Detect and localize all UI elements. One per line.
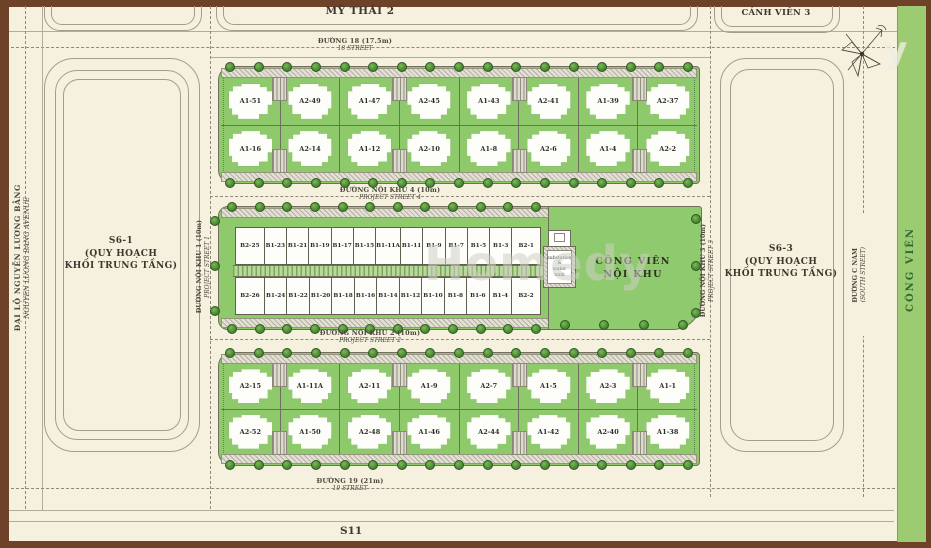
lot: A2-49 [281, 78, 341, 125]
tree-icon [683, 460, 693, 470]
lot-label: A1-4 [600, 145, 617, 153]
tree-icon [210, 261, 220, 271]
tree-icon [393, 202, 403, 212]
tree-icon [626, 348, 636, 358]
street-label-en: PROJECT STREET 4 [320, 194, 460, 201]
road-centerline-duong-19 [6, 488, 895, 489]
street-label-vi: ĐƯỜNG NỘI KHU 4 (10m) [320, 186, 460, 194]
tree-icon [227, 324, 237, 334]
lot-label: A2-15 [240, 382, 261, 390]
road-edge-south-1 [6, 510, 894, 511]
tree-icon [503, 324, 513, 334]
street-label-duong-18: ĐƯỜNG 18 (17.5m) 18 STREET [300, 37, 410, 52]
lot-label: B1-6 [470, 293, 485, 299]
lot-label: A1-11A [297, 382, 323, 390]
alley-hatch [632, 431, 647, 455]
lot: A1-8 [460, 126, 520, 173]
tree-icon [448, 202, 458, 212]
tree-icon [425, 460, 435, 470]
lot-label: A1-9 [421, 382, 438, 390]
lot-label: B1-10 [423, 293, 442, 299]
tree-icon [282, 348, 292, 358]
lot: B1-8 [445, 278, 467, 314]
lot-row: A2-52A1-50A2-48A1-46A2-44A1-42A2-40A1-38 [221, 410, 697, 455]
lot: B1-17 [332, 228, 354, 264]
tree-icon [254, 62, 264, 72]
lot: B1-9 [423, 228, 445, 264]
lot-label: A1-8 [480, 145, 497, 153]
lot: B1-5 [468, 228, 490, 264]
street-label-noi-khu-3: ĐƯỜNG NỘI KHU 3 (10m) PROJECT STREET 3 [700, 210, 715, 332]
street-label-en: (SOUTH STREET) [860, 247, 867, 302]
lot: B1-15 [354, 228, 376, 264]
lot: A2-7 [460, 364, 520, 409]
alley-hatch [632, 149, 647, 173]
lot-label: A2-48 [359, 428, 380, 436]
lot-label: B1-11 [402, 243, 421, 249]
tree-icon [569, 348, 579, 358]
tree-icon [511, 62, 521, 72]
tree-icon [511, 178, 521, 188]
tree-icon [476, 324, 486, 334]
lot-label: A1-38 [657, 428, 678, 436]
lot: A2-10 [400, 126, 460, 173]
lot-label: B1-17 [332, 243, 351, 249]
lot-label: B1-8 [448, 293, 463, 299]
lot-label: A1-50 [299, 428, 320, 436]
tree-icon [483, 178, 493, 188]
tree-icon [569, 178, 579, 188]
lot-row: A1-16A2-14A1-12A2-10A1-8A2-6A1-4A2-2 [221, 126, 697, 173]
lot: B1-21 [287, 228, 309, 264]
lot-label: A2-2 [659, 145, 676, 153]
alley-hatch [512, 363, 527, 387]
tree-icon [225, 460, 235, 470]
lot-grid: A2-15A1-11AA2-11A1-9A2-7A1-5A2-3A1-1 A2-… [221, 364, 697, 454]
alley-hatch [272, 431, 287, 455]
lot: B1-10 [422, 278, 444, 314]
tree-icon [425, 62, 435, 72]
alley-hatch [272, 363, 287, 387]
substation-box: substation & water tank [543, 246, 576, 288]
tree-icon [626, 62, 636, 72]
block-a-north: A1-51A2-49A1-47A2-45A1-43A2-41A1-39A2-37… [218, 66, 700, 184]
tree-icon [597, 62, 607, 72]
lot-label: B1-9 [426, 243, 441, 249]
lot-label: A2-41 [538, 97, 559, 105]
alley-hatch [392, 431, 407, 455]
block-s6-3-label: S6-3 (QUY HOẠCH KHỐI TRUNG TẦNG) [720, 66, 842, 458]
block-b: B2-25B1-23B1-21B1-19B1-17B1-15B1-11AB1-1… [218, 206, 550, 330]
tree-icon [597, 178, 607, 188]
lot: A2-44 [460, 410, 520, 455]
tree-row [225, 348, 693, 358]
lot-row: B2-25B1-23B1-21B1-19B1-17B1-15B1-11AB1-1… [235, 227, 541, 265]
road-edge-avenue-east [42, 6, 43, 510]
lot: B1-23 [265, 228, 287, 264]
tree-icon [540, 178, 550, 188]
lot: A1-46 [400, 410, 460, 455]
tree-row [227, 202, 541, 212]
lot: B1-4 [490, 278, 512, 314]
lot-grid: A1-51A2-49A1-47A2-45A1-43A2-41A1-39A2-37… [221, 78, 697, 172]
lot-label: A1-46 [419, 428, 440, 436]
tree-icon [282, 202, 292, 212]
tree-icon [225, 178, 235, 188]
tree-icon [540, 62, 550, 72]
tree-icon [569, 62, 579, 72]
tree-icon [340, 348, 350, 358]
tree-icon [597, 348, 607, 358]
lot-label: B1-12 [401, 293, 420, 299]
block-s6-1-line2: (QUY HOẠCH [44, 248, 198, 261]
tree-icon [483, 62, 493, 72]
tree-icon [425, 348, 435, 358]
tree-icon [210, 216, 220, 226]
tree-icon [454, 460, 464, 470]
street-label-en: 18 STREET [300, 45, 410, 52]
tree-icon [654, 62, 664, 72]
lot-label: A1-12 [359, 145, 380, 153]
lot-label: A2-10 [419, 145, 440, 153]
site-plan: MỸ THÁI 2 CẢNH VIÊN 3 ĐƯỜNG 18 (17.5m) 1… [0, 0, 931, 548]
tree-icon [683, 62, 693, 72]
lot-label: A1-42 [538, 428, 559, 436]
block-s6-1-label: S6-1 (QUY HOẠCH KHỐI TRUNG TẦNG) [44, 58, 198, 450]
lot-label: B1-18 [333, 293, 352, 299]
street-label-noi-khu-1: ĐƯỜNG NỘI KHU 1 (10m) PROJECT STREET 1 [196, 206, 211, 328]
alley-hatch [512, 149, 527, 173]
tree-icon [503, 202, 513, 212]
road-edge-south-2 [6, 521, 894, 522]
lot-label: A1-47 [359, 97, 380, 105]
lot-label: B2-1 [519, 243, 534, 249]
lot-label: A2-7 [480, 382, 497, 390]
tree-icon [599, 320, 609, 330]
block-outline-my-thai-inner [223, 6, 691, 25]
block-outline-northwest-inner [51, 6, 195, 25]
tree-icon [254, 460, 264, 470]
tree-icon [282, 62, 292, 72]
tree-icon [365, 202, 375, 212]
tree-icon [476, 202, 486, 212]
shared-alley-strip [233, 265, 543, 277]
lot-label: B1-16 [356, 293, 375, 299]
tree-icon [597, 460, 607, 470]
lot-label: A1-5 [540, 382, 557, 390]
lot-label: A2-44 [478, 428, 499, 436]
lot: A2-41 [519, 78, 579, 125]
street-label-vi: ĐẠI LỘ NGUYỄN LƯƠNG BẰNG [13, 184, 22, 331]
tree-icon [654, 460, 664, 470]
lot-label: A1-51 [240, 97, 261, 105]
lot: A2-2 [638, 126, 697, 173]
tree-icon [560, 320, 570, 330]
lot: B1-11A [376, 228, 401, 264]
block-s6-1-name: S6-1 [44, 235, 198, 248]
tree-icon [310, 202, 320, 212]
street-name-canh-vien-3: CẢNH VIÊN 3 [716, 8, 836, 18]
tree-icon [340, 460, 350, 470]
tree-icon [340, 62, 350, 72]
lot-label: B1-5 [471, 243, 486, 249]
water-tank-inner [554, 233, 565, 242]
lot-label: A2-45 [419, 97, 440, 105]
street-label-en: PROJECT STREET 2 [290, 337, 450, 344]
alley-hatch [392, 149, 407, 173]
tree-icon [454, 62, 464, 72]
lot-label: A2-37 [657, 97, 678, 105]
lot-label: B1-24 [266, 293, 285, 299]
compass-north-arrow [838, 20, 892, 78]
lot-label: B1-11A [376, 243, 400, 249]
tree-icon [282, 178, 292, 188]
tree-icon [311, 348, 321, 358]
lot: A1-1 [638, 364, 697, 409]
lot-row: A2-15A1-11AA2-11A1-9A2-7A1-5A2-3A1-1 [221, 364, 697, 410]
lot-label: B1-15 [355, 243, 374, 249]
tree-icon [626, 178, 636, 188]
tree-icon [254, 178, 264, 188]
tree-icon [255, 202, 265, 212]
tree-icon [225, 348, 235, 358]
tree-icon [683, 348, 693, 358]
street-label-vi: ĐƯỜNG 18 (17.5m) [300, 37, 410, 45]
lot: B1-12 [400, 278, 422, 314]
tree-icon [368, 62, 378, 72]
tree-icon [254, 348, 264, 358]
lot: B1-14 [377, 278, 399, 314]
block-s6-3-name: S6-3 [720, 243, 842, 256]
tree-icon [397, 348, 407, 358]
alley-hatch [512, 431, 527, 455]
lot-label: B1-22 [288, 293, 307, 299]
block-s6-3-line3: KHỐI TRUNG TẦNG) [720, 268, 842, 281]
lot: A2-3 [579, 364, 639, 409]
block-outline-my-thai [216, 6, 698, 31]
tree-icon [483, 460, 493, 470]
lot: A1-9 [400, 364, 460, 409]
lot-label: B1-23 [266, 243, 285, 249]
tree-icon [639, 320, 649, 330]
frame-left-border [0, 0, 9, 548]
alley-hatch [632, 363, 647, 387]
lot-label: A2-52 [240, 428, 261, 436]
lot: A1-11A [281, 364, 341, 409]
tree-icon [210, 306, 220, 316]
lot: B2-25 [236, 228, 265, 264]
tree-icon [227, 202, 237, 212]
street-label-avenue: ĐẠI LỘ NGUYỄN LƯƠNG BẰNG NGUYEN LUONG BA… [13, 188, 31, 328]
alley-hatch [392, 363, 407, 387]
street-label-en: 19 STREET [290, 485, 410, 492]
lot: B1-22 [287, 278, 309, 314]
substation-line3: water tank [548, 267, 571, 278]
tree-row [225, 62, 693, 72]
tree-icon [569, 460, 579, 470]
street-label-c-nam: ĐƯỜNG C NAM (SOUTH STREET) [852, 214, 867, 336]
lot-label: B1-4 [493, 293, 508, 299]
road-centerline-duong-18 [6, 47, 895, 48]
tree-icon [311, 62, 321, 72]
lot: A2-40 [579, 410, 639, 455]
tree-icon [531, 202, 541, 212]
street-label-en: PROJECT STREET 3 [708, 240, 715, 302]
lot: A1-50 [281, 410, 341, 455]
street-label-vi: ĐƯỜNG NỘI KHU 1 (10m) [196, 220, 203, 313]
tree-icon [654, 348, 664, 358]
lot: A2-14 [281, 126, 341, 173]
lot-label: B2-26 [240, 293, 259, 299]
street-label-en: NGUYEN LUONG BANG AVENUE [23, 197, 31, 319]
lot: A2-45 [400, 78, 460, 125]
road-centerline-street-4 [210, 196, 710, 197]
lot: A2-6 [519, 126, 579, 173]
lot-row: B2-26B1-24B1-22B1-20B1-18B1-16B1-14B1-12… [235, 277, 541, 315]
road-edge-south-of-18 [210, 57, 710, 58]
lot-label: B2-2 [518, 293, 533, 299]
lot-row: A1-51A2-49A1-47A2-45A1-43A2-41A1-39A2-37 [221, 78, 697, 126]
lot-label: A2-11 [359, 382, 380, 390]
lot: B2-26 [236, 278, 265, 314]
tree-icon [683, 178, 693, 188]
lot: B1-6 [467, 278, 489, 314]
lot: A2-48 [340, 410, 400, 455]
lot-label: A1-39 [597, 97, 618, 105]
alley-hatch [272, 77, 287, 101]
lot: B1-7 [446, 228, 468, 264]
lot: B1-11 [401, 228, 423, 264]
tree-icon [678, 320, 688, 330]
tree-icon [483, 348, 493, 358]
tree-icon [454, 348, 464, 358]
lot: A1-47 [340, 78, 400, 125]
road-centerline-street-2 [210, 339, 710, 340]
tree-column-west [210, 216, 220, 316]
lot: A1-12 [340, 126, 400, 173]
lot-label: B1-21 [288, 243, 307, 249]
alley-hatch [392, 77, 407, 101]
lot: A1-39 [579, 78, 639, 125]
street-label-vi: ĐƯỜNG C NAM [852, 248, 859, 303]
lot: B2-2 [512, 278, 540, 314]
lot: A1-4 [579, 126, 639, 173]
tree-icon [311, 460, 321, 470]
tree-icon [540, 348, 550, 358]
block-outline-northwest [44, 6, 202, 31]
tree-icon [282, 460, 292, 470]
lot: B1-18 [332, 278, 354, 314]
block-a-south: A2-15A1-11AA2-11A1-9A2-7A1-5A2-3A1-1 A2-… [218, 352, 700, 466]
tree-icon [420, 202, 430, 212]
street-label-vi: ĐƯỜNG NỘI KHU 2 (10m) [290, 329, 450, 337]
tree-icon [540, 460, 550, 470]
lot-label: A2-3 [600, 382, 617, 390]
lot-label: A2-6 [540, 145, 557, 153]
lot: A1-38 [638, 410, 697, 455]
lot: B1-19 [309, 228, 331, 264]
tree-icon [255, 324, 265, 334]
lot-label: B1-14 [378, 293, 397, 299]
alley-hatch [512, 77, 527, 101]
tree-icon [338, 202, 348, 212]
tree-icon [397, 62, 407, 72]
tree-icon [531, 324, 541, 334]
street-label-vi: ĐƯỜNG NỘI KHU 3 (10m) [700, 224, 707, 317]
tree-icon [511, 460, 521, 470]
lot-label: A2-40 [597, 428, 618, 436]
lot: A1-42 [519, 410, 579, 455]
lot: B1-16 [355, 278, 377, 314]
lot-label: B2-25 [240, 243, 259, 249]
lot-label: B1-19 [310, 243, 329, 249]
tree-icon [225, 62, 235, 72]
lot: B1-20 [310, 278, 332, 314]
lot: A1-5 [519, 364, 579, 409]
block-s11-label: S11 [340, 525, 362, 537]
lot-label: A1-16 [240, 145, 261, 153]
street-label-vi: ĐƯỜNG 19 (21m) [290, 477, 410, 485]
alley-hatch [272, 149, 287, 173]
lot-label: A2-14 [299, 145, 320, 153]
street-label-noi-khu-4: ĐƯỜNG NỘI KHU 4 (10m) PROJECT STREET 4 [320, 186, 460, 201]
street-name-my-thai-2: MỸ THÁI 2 [300, 5, 420, 17]
street-label-noi-khu-2: ĐƯỜNG NỘI KHU 2 (10m) PROJECT STREET 2 [290, 329, 450, 344]
block-s6-1-line3: KHỐI TRUNG TẦNG) [44, 260, 198, 273]
tree-row-park-south [560, 320, 688, 330]
lot-label: B1-7 [448, 243, 463, 249]
tree-icon [511, 348, 521, 358]
lot-label: B1-3 [493, 243, 508, 249]
lot: B1-3 [490, 228, 512, 264]
park-label: CÔNG VIÊN NỘI KHU [579, 255, 670, 281]
alley-hatch [632, 77, 647, 101]
lot-label: A1-1 [659, 382, 676, 390]
lot: A2-11 [340, 364, 400, 409]
park-strip-label: CÔNG VIÊN [905, 212, 916, 312]
street-label-duong-19: ĐƯỜNG 19 (21m) 19 STREET [290, 477, 410, 492]
lot: B1-24 [265, 278, 287, 314]
park-label-line2: NỘI KHU [595, 268, 670, 281]
block-s6-3-line2: (QUY HOẠCH [720, 256, 842, 269]
lot-label: B1-20 [311, 293, 330, 299]
substation-label: substation & water tank [547, 250, 572, 284]
tree-icon [368, 460, 378, 470]
lot: A1-43 [460, 78, 520, 125]
water-tank [548, 230, 571, 247]
park-label-line1: CÔNG VIÊN [595, 255, 670, 268]
street-label-en: PROJECT STREET 1 [204, 236, 211, 298]
lot: A2-37 [638, 78, 697, 125]
tree-icon [397, 460, 407, 470]
tree-icon [368, 348, 378, 358]
lot-label: A1-43 [478, 97, 499, 105]
lot: B2-1 [512, 228, 540, 264]
lot-label: A2-49 [299, 97, 320, 105]
tree-icon [654, 178, 664, 188]
tree-icon [626, 460, 636, 470]
tree-row [225, 460, 693, 470]
